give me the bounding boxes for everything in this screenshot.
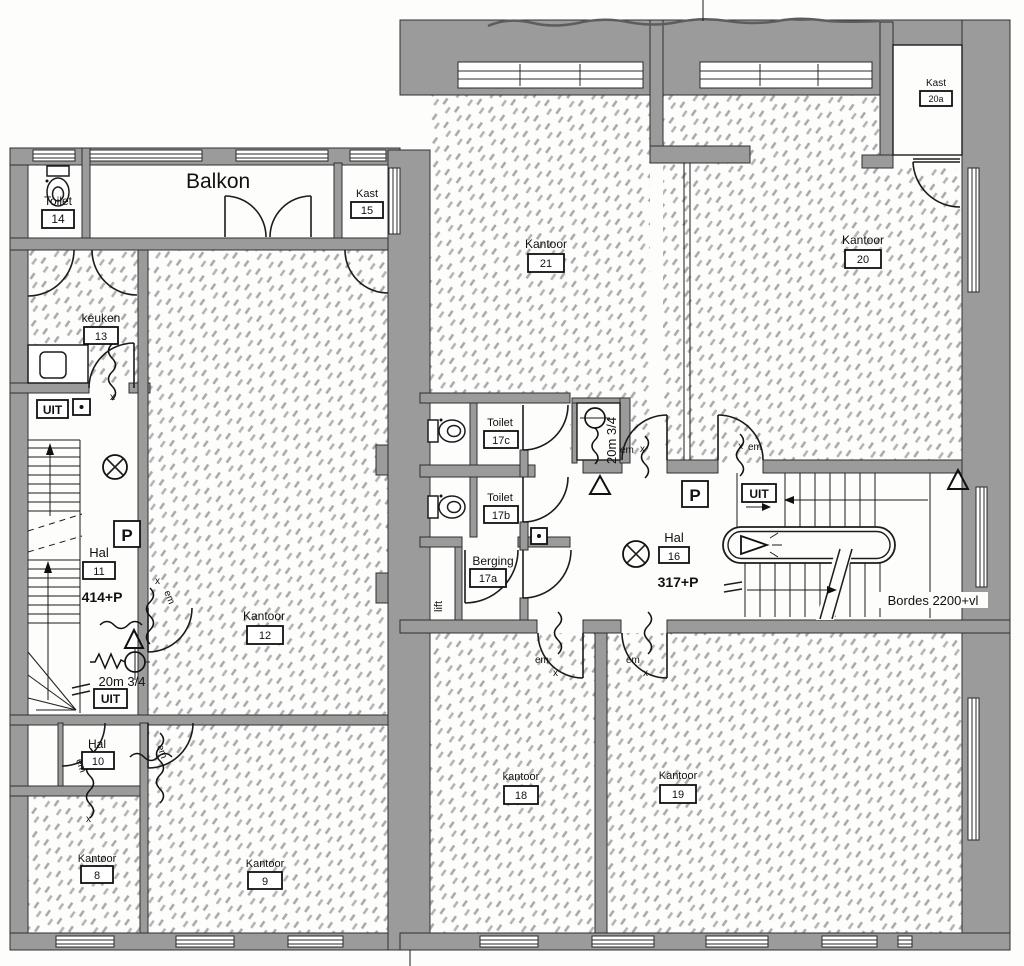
room-label-kantoor20: Kantoor: [842, 233, 884, 247]
room-number-toilet14: 14: [51, 212, 65, 226]
wall-kast20a-bottom: [862, 155, 893, 168]
window: [592, 936, 654, 947]
window: [822, 936, 877, 947]
room-kantoor-20-area-east: [880, 168, 962, 463]
window: [458, 62, 643, 88]
wall-mid-horizontal: [10, 715, 390, 725]
room-label-hal11: Hal: [89, 545, 109, 560]
room-number-kast15: 15: [361, 205, 373, 217]
room-number-hal11: 11: [93, 566, 104, 578]
cross-mark: x: [110, 392, 115, 403]
cross-mark: x: [738, 441, 743, 452]
wall-hal10-closet: [58, 723, 63, 786]
room-number-keuken13: 13: [95, 331, 107, 343]
hose-label: 20m 3/4: [99, 674, 146, 689]
cross-mark: x: [155, 576, 160, 587]
room-kantoor-18-area: [428, 633, 595, 933]
room-label-lift: lift: [433, 601, 445, 612]
door-arc: [270, 196, 311, 237]
room-label-kantoor21: Kantoor: [525, 237, 567, 251]
exit-sign: UIT: [43, 403, 63, 417]
door-toilet17c: [523, 405, 568, 450]
room-label-kast15: Kast: [356, 188, 378, 200]
cross-mark: x: [553, 668, 558, 679]
toilet-fixture-icon: [428, 419, 465, 443]
wall-hal16-bottom-a: [400, 620, 537, 633]
window: [288, 936, 343, 947]
lamp-icon: [103, 455, 127, 479]
elevation-hal16: 317+P: [658, 574, 699, 590]
room-number-hal16: 16: [668, 551, 680, 563]
room-label-hal16: Hal: [664, 530, 684, 545]
exit-arrow-icon: [746, 503, 771, 511]
wall-spine-bump-2: [376, 573, 388, 603]
window: [176, 936, 234, 947]
room-label-kantoor18: kantoor: [503, 771, 540, 783]
em-label: em: [748, 442, 762, 453]
cross-mark: x: [640, 444, 645, 455]
em-squiggle: [100, 622, 142, 629]
em-label: em: [535, 655, 549, 666]
toilet-fixture-icon: [428, 495, 465, 519]
cross-mark: x: [643, 668, 648, 679]
room-number-toilet17b: 17b: [492, 510, 510, 522]
room-label-hal10: Hal: [88, 737, 106, 751]
room-number-kantoor20: 20: [857, 254, 869, 266]
door-arc: [225, 196, 266, 237]
wall-below-balkon: [10, 238, 402, 250]
wall-kantoor18-19: [595, 633, 607, 933]
room-label-toilet17c: Toilet: [487, 417, 513, 429]
window: [968, 168, 979, 292]
room-label-keuken13: keuken: [82, 311, 121, 325]
lamp-icon: [623, 541, 649, 567]
riser-sign: P: [689, 486, 700, 505]
wall-kantoor21-20: [650, 20, 663, 163]
window: [976, 487, 987, 587]
wall-wc2-partition: [470, 477, 477, 537]
floor-plan-page: Balkon Toilet 14 Kast 15 keuken 13 UIT U…: [0, 0, 1024, 966]
wall-kantoor20-chunk: [650, 146, 750, 163]
switch-box-icon: [531, 528, 547, 544]
wall-left-outer: [10, 148, 28, 950]
kitchen-sink-icon: [28, 345, 88, 383]
wall-toilets-mid: [420, 465, 535, 477]
room-label-kantoor12: Kantoor: [243, 609, 285, 623]
room-label-kast20a: Kast: [926, 78, 946, 89]
bordes-label: Bordes 2200+vl: [888, 593, 979, 608]
wall-hal16-bottom-b: [583, 620, 621, 633]
floor-plan-drawing: Balkon Toilet 14 Kast 15 keuken 13 UIT U…: [0, 0, 1024, 966]
switch-box-icon: [73, 399, 90, 415]
exit-sign: UIT: [101, 692, 121, 706]
wall-lift-shaft: [455, 547, 462, 620]
wall-keuken-hal-a: [10, 383, 89, 393]
window: [480, 936, 538, 947]
wall-hal11-kantoor12: [138, 250, 148, 715]
room-number-kantoor12: 12: [259, 630, 271, 642]
room-label-balkon: Balkon: [186, 170, 250, 193]
wall-hal10-kantoor8: [10, 786, 148, 796]
window: [236, 150, 328, 161]
room-kantoor-9-area: [148, 723, 388, 933]
room-number-hal10: 10: [92, 756, 104, 768]
wall-kast15-left: [334, 163, 342, 240]
window: [898, 936, 912, 947]
wall-kast20a-left: [880, 22, 893, 168]
window: [33, 150, 75, 161]
window: [706, 936, 768, 947]
wall-hal16-top-b: [667, 460, 718, 473]
triangle-icon: [590, 476, 610, 494]
wall-toilets-east-a: [520, 450, 528, 477]
wall-berging-top-a: [420, 537, 462, 547]
exit-sign: UIT: [749, 487, 769, 501]
wall-hal16-top-c: [763, 460, 962, 473]
room-label-kantoor8: Kantoor: [78, 853, 117, 865]
room-label-kantoor19: Kantoor: [659, 770, 698, 782]
room-label-berging17a: Berging: [472, 554, 513, 568]
stairs-hal11: [28, 440, 90, 713]
room-number-berging17a: 17a: [479, 573, 498, 585]
hose-label: 20m 3/4: [604, 417, 619, 464]
window: [350, 150, 386, 161]
window: [56, 936, 114, 947]
room-number-kantoor8: 8: [94, 870, 100, 882]
wall-toilet14-right: [82, 148, 90, 240]
window: [90, 150, 202, 161]
room-number-kast20a: 20a: [928, 94, 943, 104]
em-label: em: [620, 445, 634, 456]
cross-mark: x: [86, 814, 91, 825]
wall-spine-bump-1: [376, 445, 388, 475]
room-label-kantoor9: Kantoor: [246, 858, 285, 870]
riser-sign: P: [121, 526, 132, 545]
room-number-kantoor18: 18: [515, 790, 527, 802]
room-number-kantoor21: 21: [540, 258, 552, 270]
door-toilet17b: [523, 477, 568, 522]
room-number-kantoor19: 19: [672, 789, 684, 801]
door-berging-hall: [523, 550, 571, 598]
room-label-toilet14: Toilet: [44, 194, 73, 208]
window: [700, 62, 872, 88]
wall-center-spine: [388, 150, 430, 950]
elevation-hal11: 414+P: [82, 589, 123, 605]
wall-wc1-partition: [470, 403, 477, 465]
em-label: em: [626, 655, 640, 666]
wall-toilets-top: [420, 393, 570, 403]
room-kantoor-12-area: [148, 250, 388, 715]
wall-toilets-east-b: [520, 522, 528, 550]
window: [968, 698, 979, 840]
wall-vestibule-left: [572, 403, 577, 463]
room-number-kantoor9: 9: [262, 876, 268, 888]
room-number-toilet17c: 17c: [492, 435, 510, 447]
room-label-toilet17b: Toilet: [487, 492, 513, 504]
window: [389, 168, 400, 234]
wall-hal16-bottom-c: [667, 620, 1010, 633]
